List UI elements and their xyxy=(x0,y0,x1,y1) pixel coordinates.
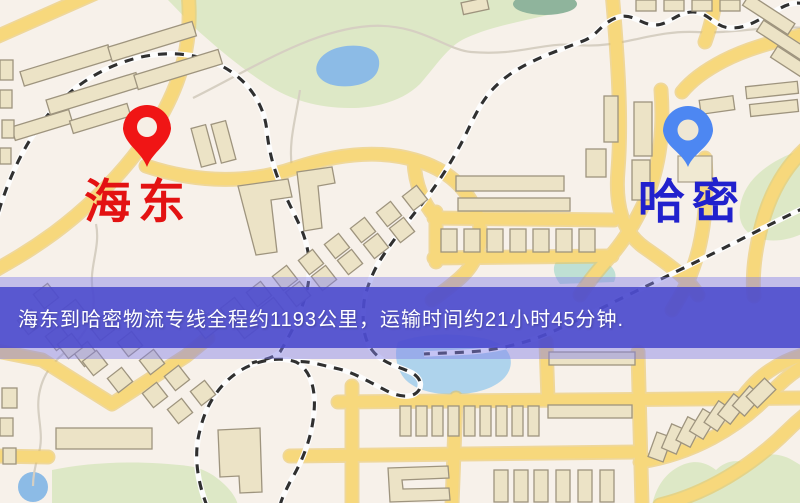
destination-pin[interactable] xyxy=(659,105,717,167)
destination-label: 哈密 xyxy=(638,180,746,227)
route-banner: 海东到哈密物流专线全程约1193公里，运输时间约21小时45分钟. xyxy=(0,287,800,348)
origin-pin[interactable] xyxy=(119,101,175,167)
route-banner-text: 海东到哈密物流专线全程约1193公里，运输时间约21小时45分钟. xyxy=(0,303,624,332)
map[interactable] xyxy=(0,0,800,503)
origin-label: 海东 xyxy=(84,180,192,227)
map-screenshot: 海东 哈密 海东到哈密物流专线全程约1193公里，运输时间约21小时45分钟. xyxy=(0,0,800,503)
